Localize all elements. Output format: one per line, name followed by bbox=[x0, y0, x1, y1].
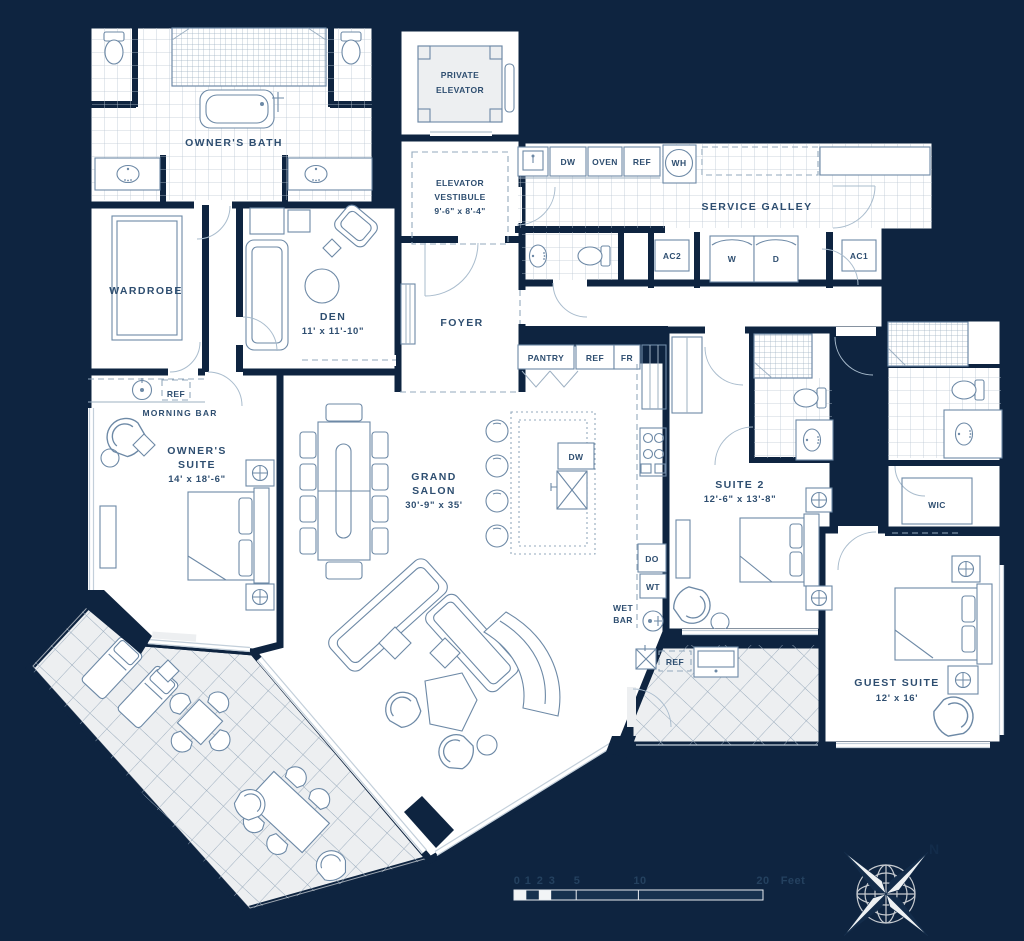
label-pantry: PANTRY bbox=[528, 353, 564, 363]
sink-icon bbox=[117, 166, 139, 183]
label-grand-salon-dims: 30'-9" x 35' bbox=[405, 500, 463, 511]
label-wh: WH bbox=[672, 158, 687, 168]
lamp-icon bbox=[253, 466, 268, 481]
room-foyer-vestibule bbox=[398, 138, 522, 392]
label-foyer: FOYER bbox=[440, 317, 483, 329]
label-oven: OVEN bbox=[592, 157, 618, 167]
label-vestibule-dims: 9'-6" x 8'-4" bbox=[434, 206, 485, 216]
label-vestibule-1: ELEVATOR bbox=[436, 178, 484, 188]
label-owners-suite-dims: 14' x 18'-6" bbox=[168, 474, 226, 485]
scale-tick-2: 2 bbox=[537, 875, 544, 887]
label-ac1: AC1 bbox=[850, 251, 868, 261]
label-wic: WIC bbox=[928, 500, 946, 510]
label-ref-galley: REF bbox=[633, 157, 651, 167]
sink-icon bbox=[530, 245, 547, 267]
label-wet-bar-1: WET bbox=[613, 603, 633, 613]
scale-tick-5: 5 bbox=[574, 875, 581, 887]
label-vestibule-2: VESTIBULE bbox=[434, 192, 485, 202]
lamp-icon bbox=[812, 591, 827, 606]
label-den-dims: 11' x 11'-10" bbox=[302, 326, 365, 337]
suite2-door-opening bbox=[705, 326, 745, 336]
label-ref-terrace: REF bbox=[666, 657, 684, 667]
toilet-icon bbox=[104, 32, 124, 64]
label-den: DEN bbox=[320, 311, 346, 323]
scale-tick-0: 0 bbox=[514, 875, 521, 887]
scale-tick-20: 20 bbox=[756, 875, 769, 887]
label-dw-island: DW bbox=[569, 452, 585, 462]
compass-north-label: N bbox=[929, 841, 939, 857]
label-grand-salon-2: SALON bbox=[412, 485, 456, 497]
label-owners-suite-1: OWNER'S bbox=[167, 445, 227, 457]
bed bbox=[895, 588, 979, 660]
label-private-elevator-2: ELEVATOR bbox=[436, 85, 484, 95]
sink-icon bbox=[956, 423, 973, 445]
label-guest-suite-dims: 12' x 16' bbox=[876, 693, 919, 704]
toilet-icon bbox=[952, 380, 984, 400]
label-service-galley: SERVICE GALLEY bbox=[701, 201, 812, 213]
label-suite2: SUITE 2 bbox=[715, 479, 764, 491]
label-ac2: AC2 bbox=[663, 251, 681, 261]
lamp-icon bbox=[253, 590, 268, 605]
label-morning-bar: MORNING BAR bbox=[142, 408, 217, 418]
guestsuite-door-opening bbox=[838, 526, 878, 535]
bathtub bbox=[200, 90, 284, 128]
room-hall bbox=[520, 283, 885, 330]
bench bbox=[676, 520, 690, 578]
terrace-door-opening bbox=[627, 687, 636, 727]
elevator-door-opening bbox=[430, 126, 492, 136]
scale-tick-3: 3 bbox=[549, 875, 556, 887]
label-guest-suite: GUEST SUITE bbox=[854, 677, 939, 689]
bench bbox=[100, 506, 116, 568]
lamp-icon bbox=[956, 673, 971, 688]
sink-icon bbox=[305, 166, 327, 183]
label-ref-kitchen: REF bbox=[586, 353, 604, 363]
label-ref-morning-bar: REF bbox=[167, 389, 185, 399]
label-dryer: D bbox=[773, 254, 780, 264]
label-wt: WT bbox=[646, 582, 660, 592]
label-owners-bath: OWNER'S BATH bbox=[185, 137, 283, 149]
label-private-elevator-1: PRIVATE bbox=[441, 70, 479, 80]
label-wardrobe: WARDROBE bbox=[109, 285, 183, 297]
bed bbox=[188, 492, 256, 580]
scale-tick-10: 10 bbox=[633, 875, 646, 887]
washer-dryer bbox=[710, 236, 798, 282]
scale-tick-1: 1 bbox=[525, 875, 532, 887]
vanity-right bbox=[288, 158, 372, 190]
lamp-icon bbox=[959, 562, 974, 577]
label-washer: W bbox=[728, 254, 737, 264]
floor-plan: OWNER'S BATH PRIVATE ELEVATOR ELEVATOR V… bbox=[0, 0, 1024, 941]
label-wet-bar-2: BAR bbox=[613, 615, 633, 625]
label-do: DO bbox=[645, 554, 659, 564]
bed bbox=[740, 518, 806, 582]
guestbath-door-opening bbox=[836, 327, 876, 336]
label-fr: FR bbox=[621, 353, 633, 363]
powder-door-opening bbox=[553, 279, 587, 289]
toilet-icon bbox=[578, 246, 610, 266]
label-suite2-dims: 12'-6" x 13'-8" bbox=[704, 494, 777, 505]
toilet-icon bbox=[341, 32, 361, 64]
sink-icon bbox=[804, 429, 821, 451]
label-dw: DW bbox=[561, 157, 577, 167]
label-owners-suite-2: SUITE bbox=[178, 459, 216, 471]
toilet-icon bbox=[794, 388, 826, 408]
scale-unit: Feet bbox=[781, 875, 806, 887]
lamp-icon bbox=[812, 493, 827, 508]
label-grand-salon-1: GRAND bbox=[411, 471, 457, 483]
